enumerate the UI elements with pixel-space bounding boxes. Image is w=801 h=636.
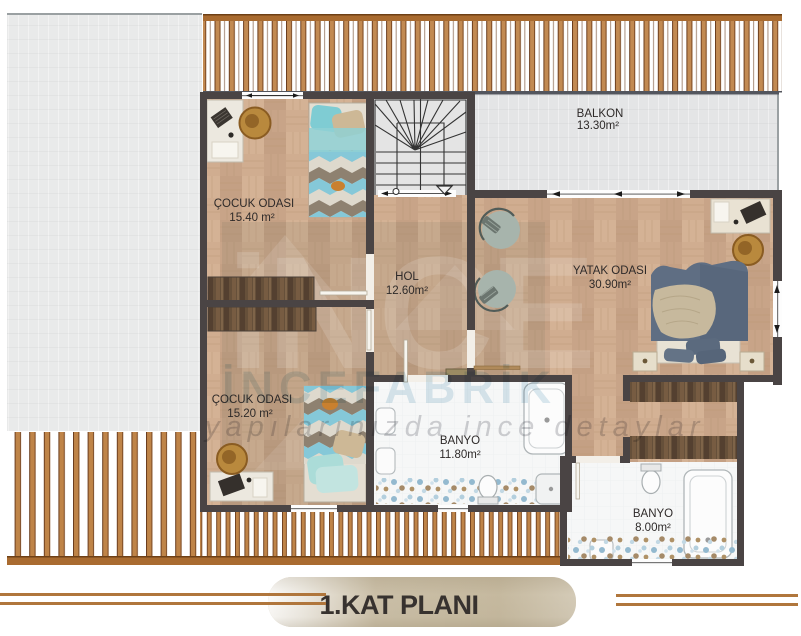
svg-text:13.30m²: 13.30m² — [577, 120, 619, 132]
svg-text:BANYO: BANYO — [633, 508, 673, 520]
svg-text:12.60m²: 12.60m² — [386, 285, 428, 297]
svg-text:15.40 m²: 15.40 m² — [229, 212, 275, 224]
svg-text:8.00m²: 8.00m² — [635, 522, 671, 534]
svg-text:30.90m²: 30.90m² — [589, 279, 631, 291]
svg-text:11.80m²: 11.80m² — [439, 449, 481, 461]
svg-text:İNCEFABRİK: İNCEFABRİK — [222, 362, 557, 413]
svg-text:YATAK ODASI: YATAK ODASI — [573, 265, 647, 277]
svg-text:BALKON: BALKON — [577, 108, 624, 120]
svg-text:HOL: HOL — [395, 271, 419, 283]
svg-text:ÇOCUK ODASI: ÇOCUK ODASI — [214, 198, 295, 210]
svg-text:yapılarınızda ince detaylar: yapılarınızda ince detaylar — [203, 411, 706, 443]
svg-text:1.KAT PLANI: 1.KAT PLANI — [319, 590, 478, 620]
